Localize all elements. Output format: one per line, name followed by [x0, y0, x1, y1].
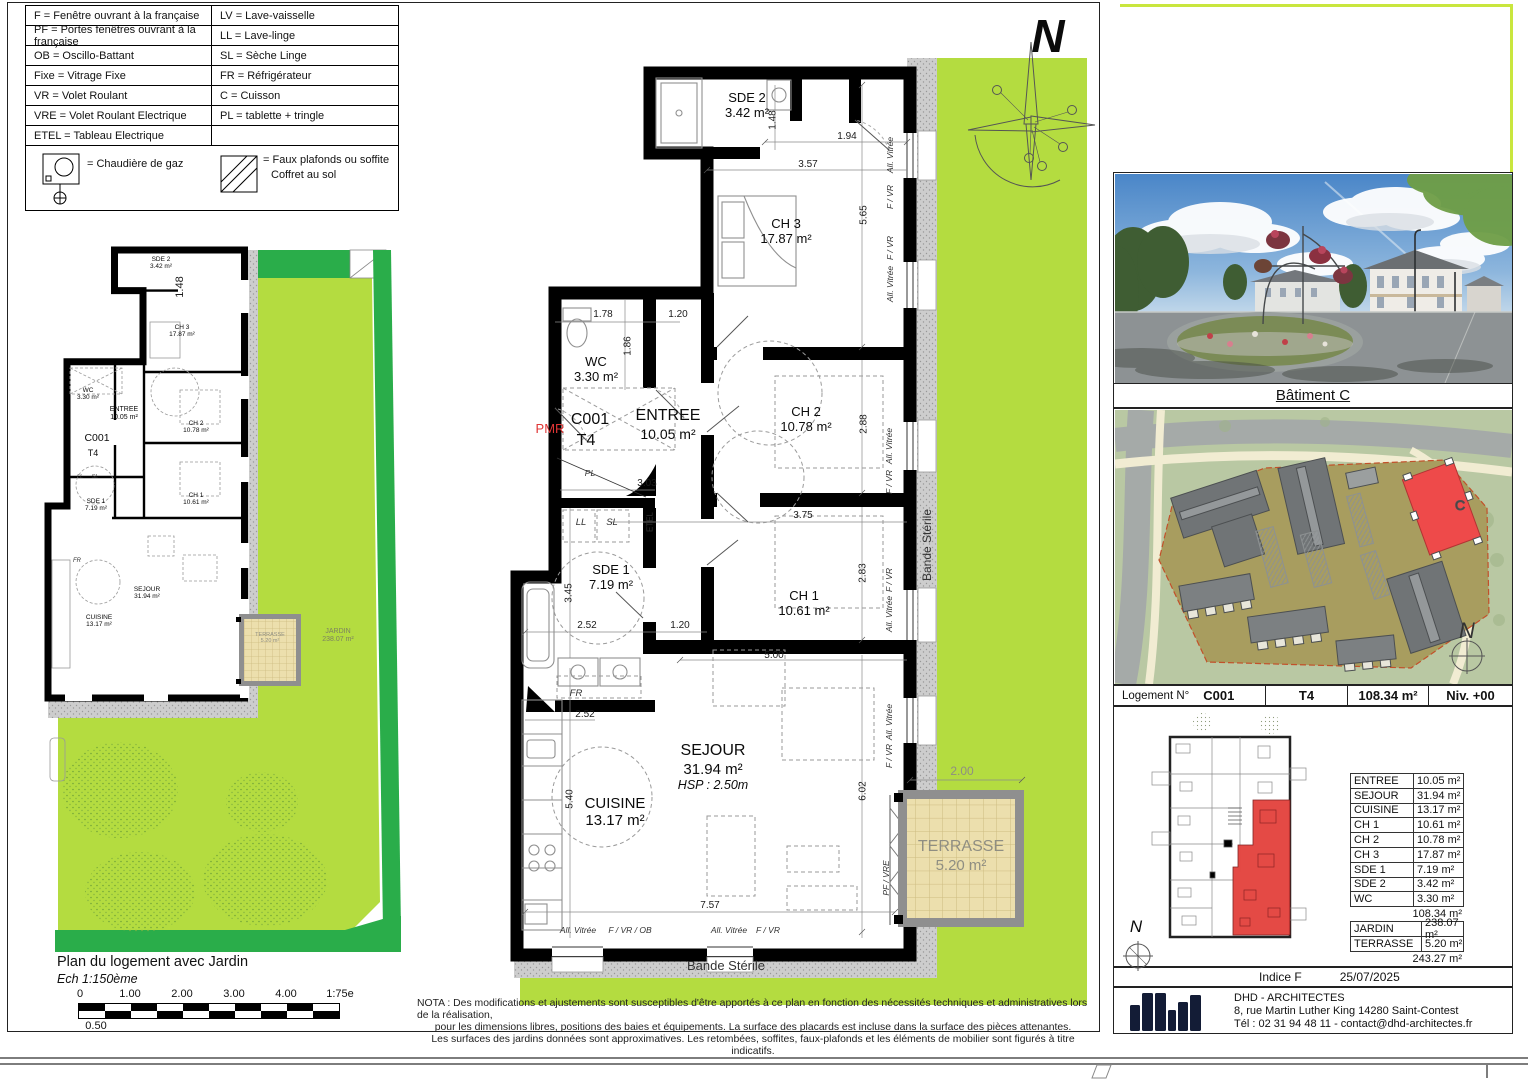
legend-text: LV = Lave-vaisselle — [211, 6, 398, 25]
room-label: CH 210.78 m² — [183, 420, 209, 434]
room-label: CH 317.87 m² — [760, 216, 811, 246]
legend-text: LL = Lave-linge — [211, 26, 398, 45]
sheet-fold-mark — [1090, 1063, 1114, 1080]
dim-label: 2.83 — [858, 563, 869, 582]
drawing-sheet: F = Fenêtre ouvrant à la françaiseLV = L… — [0, 0, 1528, 1080]
nota-line: pour les dimensions libres, positions de… — [417, 1022, 1089, 1034]
legend-text: C = Cuisson — [211, 86, 398, 105]
window-tag: PF / VRE — [881, 860, 891, 895]
window-tag: All. Vitrée — [560, 925, 596, 935]
room-label: CUISINE13.17 m² — [585, 795, 646, 830]
garden-label: JARDIN238.07 m² — [322, 628, 354, 643]
street-photo — [1115, 174, 1512, 383]
sheet-edge-tick — [1486, 1063, 1488, 1078]
dim-label: 1.78 — [593, 309, 612, 320]
dim-label: 1.20 — [670, 620, 689, 631]
window-tag: All. Vitrée — [711, 925, 747, 935]
unit-info-bar: Logement N°C001 T4 108.34 m² Niv. +00 — [1113, 685, 1513, 706]
appliance-tag: LL — [576, 517, 587, 528]
table-row: CH 317.87 m² — [1351, 848, 1463, 863]
left-plan-with-garden — [0, 230, 430, 1040]
dim-label: 7.57 — [700, 900, 719, 911]
legend-text — [211, 126, 398, 145]
closet-tag: PL — [585, 468, 595, 478]
site-building-label: C — [1455, 497, 1465, 513]
unit-info-cell: Logement N°C001 — [1114, 686, 1266, 705]
dim-label: 5.65 — [859, 205, 870, 224]
table-row: JARDIN238.07 m² — [1351, 922, 1463, 937]
nota-line: NOTA : Des modifications et ajustements … — [417, 998, 1089, 1022]
dim-label: 1.48 — [768, 110, 779, 129]
legend-row: VRE = Volet Roulant ElectriquePL = table… — [26, 106, 398, 126]
legend-text: OB = Oscillo-Battant — [26, 50, 211, 62]
legend-text: PL = tablette + tringle — [211, 106, 398, 125]
mini-terrace — [236, 614, 301, 686]
revision-index: Indice F — [1259, 970, 1302, 984]
appliance-tag: FR — [570, 688, 583, 699]
key-plan — [1140, 712, 1320, 962]
table-row: TERRASSE5.20 m² — [1351, 937, 1463, 952]
room-label: CUISINE13.17 m² — [86, 614, 112, 628]
legend-text: = Chaudière de gaz — [87, 158, 183, 170]
room-label: CH 110.61 m² — [778, 588, 829, 618]
site-plan: C N — [1115, 410, 1512, 684]
legend-row: VR = Volet RoulantC = Cuisson — [26, 86, 398, 106]
terrace-label: TERRASSE5.20 m² — [255, 632, 285, 644]
dim-label: 3.45 — [564, 583, 575, 602]
photo-caption: Bâtiment C — [1113, 383, 1513, 408]
window-tag: All. Vitrée — [885, 266, 895, 302]
table-row: WC3.30 m² — [1351, 892, 1463, 907]
legend-text: Coffret au sol — [271, 169, 336, 181]
firm-name: DHD - ARCHITECTES — [1234, 992, 1472, 1005]
dhd-logo-icon — [1130, 992, 1204, 1032]
room-label: SDE 23.42 m² — [150, 256, 172, 270]
room-label: SDE 23.42 m² — [725, 90, 769, 120]
nota-note: NOTA : Des modifications et ajustements … — [417, 998, 1089, 1058]
table-row: CH 210.78 m² — [1351, 833, 1463, 848]
etel-tag: ETEL — [646, 512, 655, 532]
window-tag: F / VR — [884, 470, 894, 494]
window-tag: All. Vitrée — [884, 704, 894, 740]
dim-label: 6.02 — [858, 781, 869, 800]
dim-label: 5.00 — [764, 650, 783, 661]
room-label: CH 317.87 m² — [169, 324, 195, 338]
legend-row: PF = Portes fenêtres ouvrant à la frança… — [26, 26, 398, 46]
room-label: CH 110.61 m² — [183, 492, 209, 506]
dim-label: 2.88 — [859, 414, 870, 433]
unit-info-cell: 108.34 m² — [1348, 686, 1429, 705]
dim-label: 5.40 — [565, 789, 576, 808]
room-label: SEJOUR31.94 m²HSP : 2.50m — [678, 742, 748, 792]
window-tag: F / VR — [884, 744, 894, 768]
dim-label: 1.86 — [623, 336, 634, 355]
legend-text: = Faux plafonds ou soffite — [263, 154, 389, 166]
legend-symbols: = Chaudière de gaz = Faux plafonds ou so… — [26, 146, 398, 210]
total-value: 243.27 m² — [1350, 952, 1464, 966]
left-plan-scale: Ech 1:150ème — [57, 972, 138, 986]
sterile-strip-label: Bande Stérile — [687, 958, 765, 973]
unit-code-label: C001 — [84, 432, 109, 444]
room-label: ENTREE10.05 m² — [110, 406, 138, 421]
legend-text: F = Fenêtre ouvrant à la française — [26, 10, 211, 22]
window-tag: All. Vitrée — [885, 137, 895, 173]
north-label: N — [1031, 10, 1064, 63]
revision-bar: Indice F 25/07/2025 — [1113, 967, 1513, 987]
legend-text: SL = Sèche Linge — [211, 46, 398, 65]
legend-text: PF = Portes fenêtres ouvrant à la frança… — [26, 24, 211, 48]
firm-contact: Tél : 02 31 94 48 11 - contact@dhd-archi… — [1234, 1018, 1472, 1031]
window-tag: F / VR — [885, 236, 895, 260]
table-row: ENTREE10.05 m² — [1351, 774, 1463, 789]
legend-row: ETEL = Tableau Electrique — [26, 126, 398, 146]
sheet-trim-line — [1120, 4, 1510, 7]
table-row: SDE 17.19 m² — [1351, 863, 1463, 878]
firm-address: 8, rue Martin Luther King 14280 Saint-Co… — [1234, 1005, 1472, 1018]
unit-code-label: C001 — [571, 411, 609, 430]
nota-line: Les surfaces des jardins données sont ap… — [417, 1034, 1089, 1058]
pmr-label: PMR — [536, 421, 565, 436]
legend-text: VR = Volet Roulant — [26, 90, 211, 102]
legend-row: Fixe = Vitrage FixeFR = Réfrigérateur — [26, 66, 398, 86]
window-tag: F / VR / OB — [608, 925, 651, 935]
table-row: CUISINE13.17 m² — [1351, 804, 1463, 819]
dim-label: 1.94 — [837, 131, 856, 142]
unit-type-label: T4 — [577, 432, 596, 451]
appliance-tag: SL — [92, 474, 99, 480]
dim-label: 1.48 — [174, 276, 186, 297]
scale-bar — [78, 1003, 340, 1019]
appliance-tag: SL — [606, 517, 618, 528]
table-row: SEJOUR31.94 m² — [1351, 789, 1463, 804]
window-tag: All. Vitrée — [884, 596, 894, 632]
soffit-hatch-icon — [219, 154, 259, 194]
firm-text: DHD - ARCHITECTES 8, rue Martin Luther K… — [1234, 992, 1472, 1031]
sterile-strip-label: Bande Stérile — [920, 509, 934, 581]
gas-boiler-icon — [40, 152, 84, 206]
dim-label: 2.52 — [575, 709, 594, 720]
legend-text: Fixe = Vitrage Fixe — [26, 70, 211, 82]
firm-block: DHD - ARCHITECTES 8, rue Martin Luther K… — [1113, 987, 1513, 1034]
window-tag: All. Vitrée — [884, 428, 894, 464]
room-label: WC3.30 m² — [77, 387, 99, 401]
room-label: SDE 17.19 m² — [85, 498, 107, 512]
table-row: CH 110.61 m² — [1351, 818, 1463, 833]
legend-text: FR = Réfrigérateur — [211, 66, 398, 85]
dim-label: 2.00 — [950, 764, 973, 778]
unit-type-label: T4 — [88, 448, 99, 458]
unit-info-cell: Niv. +00 — [1429, 686, 1512, 705]
dim-label: 3.03 — [637, 478, 656, 489]
legend-row: OB = Oscillo-BattantSL = Sèche Linge — [26, 46, 398, 66]
window-tag: F / VR — [756, 925, 780, 935]
key-plan-compass — [1120, 938, 1156, 974]
dim-label: 3.57 — [798, 159, 817, 170]
room-label: SDE 17.19 m² — [589, 562, 633, 592]
area-table: ENTREE10.05 m² SEJOUR31.94 m² CUISINE13.… — [1350, 773, 1464, 966]
dim-label: 2.52 — [577, 620, 596, 631]
main-floor-plan — [430, 0, 1105, 1040]
north-label: N — [1130, 917, 1142, 937]
legend-text: VRE = Volet Roulant Electrique — [26, 110, 211, 122]
window-tag: F / VR — [885, 185, 895, 209]
dim-label: 1.20 — [668, 309, 687, 320]
dim-label: 3.75 — [793, 510, 812, 521]
room-label: ENTREE10.05 m² — [636, 407, 701, 442]
legend-text: ETEL = Tableau Electrique — [26, 130, 211, 142]
window-tag: F / VR — [884, 568, 894, 592]
unit-info-cell: T4 — [1266, 686, 1348, 705]
room-label: CH 210.78 m² — [780, 404, 831, 434]
room-label: SEJOUR31.94 m² — [134, 586, 160, 600]
legend-table: F = Fenêtre ouvrant à la françaiseLV = L… — [25, 5, 399, 211]
room-label: WC3.30 m² — [574, 354, 618, 384]
terrace-label: TERRASSE5.20 m² — [918, 838, 1004, 874]
appliance-tag: FR — [73, 558, 81, 564]
appliance-tag: LL — [77, 474, 83, 480]
revision-date: 25/07/2025 — [1340, 970, 1400, 984]
sheet-edge-line — [0, 1063, 1528, 1065]
table-row: SDE 23.42 m² — [1351, 878, 1463, 893]
left-plan-title: Plan du logement avec Jardin — [57, 954, 248, 970]
